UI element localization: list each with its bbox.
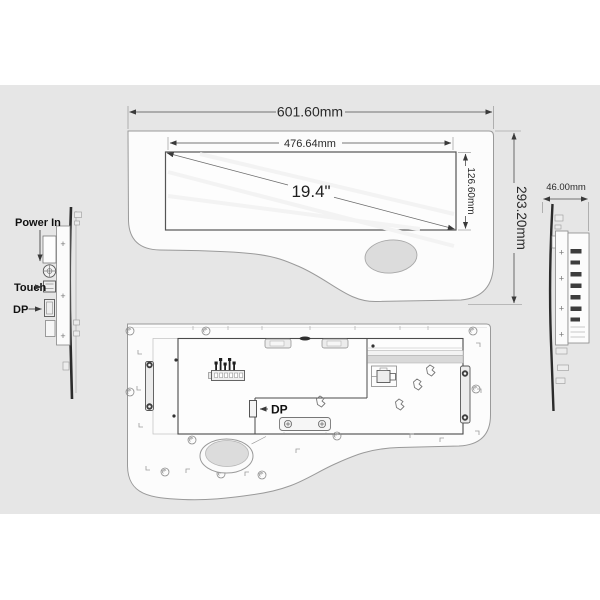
lower-connector [46, 321, 56, 337]
connector-housing [43, 236, 56, 263]
screw-icon [462, 414, 468, 420]
display-height-label: 126.60mm [465, 167, 476, 214]
power-jack-icon [43, 265, 55, 277]
diagonal-size-label: 19.4" [291, 182, 330, 201]
side-bracket-strip [556, 231, 569, 345]
dp-label-back: DP [271, 403, 288, 417]
screw-icon [146, 403, 152, 409]
depth-label: 46.00mm [546, 182, 586, 193]
overall-width-label: 601.60mm [277, 104, 343, 120]
technical-drawing-canvas: 19.4" 601.60mm 476.64mm [0, 0, 600, 600]
led-bar [367, 348, 463, 363]
dp-port-icon [45, 300, 55, 317]
technical-drawing-page: 19.4" 601.60mm 476.64mm [0, 0, 600, 600]
top-knob [300, 337, 311, 341]
overall-height-label: 293.20mm [514, 186, 529, 250]
dp-label-left: DP [13, 304, 28, 316]
screw-icon [462, 370, 468, 376]
screw-icon [284, 420, 291, 427]
dp-connector [250, 401, 257, 418]
power-in-label: Power In [15, 217, 61, 229]
screw-icon [318, 420, 325, 427]
screw-icon [146, 362, 152, 368]
power-socket-box [372, 366, 397, 387]
right-mount-bracket [461, 366, 471, 423]
touch-label: Touch [14, 282, 46, 294]
left-mount-bracket [146, 362, 154, 411]
display-width-label: 476.64mm [284, 138, 336, 150]
